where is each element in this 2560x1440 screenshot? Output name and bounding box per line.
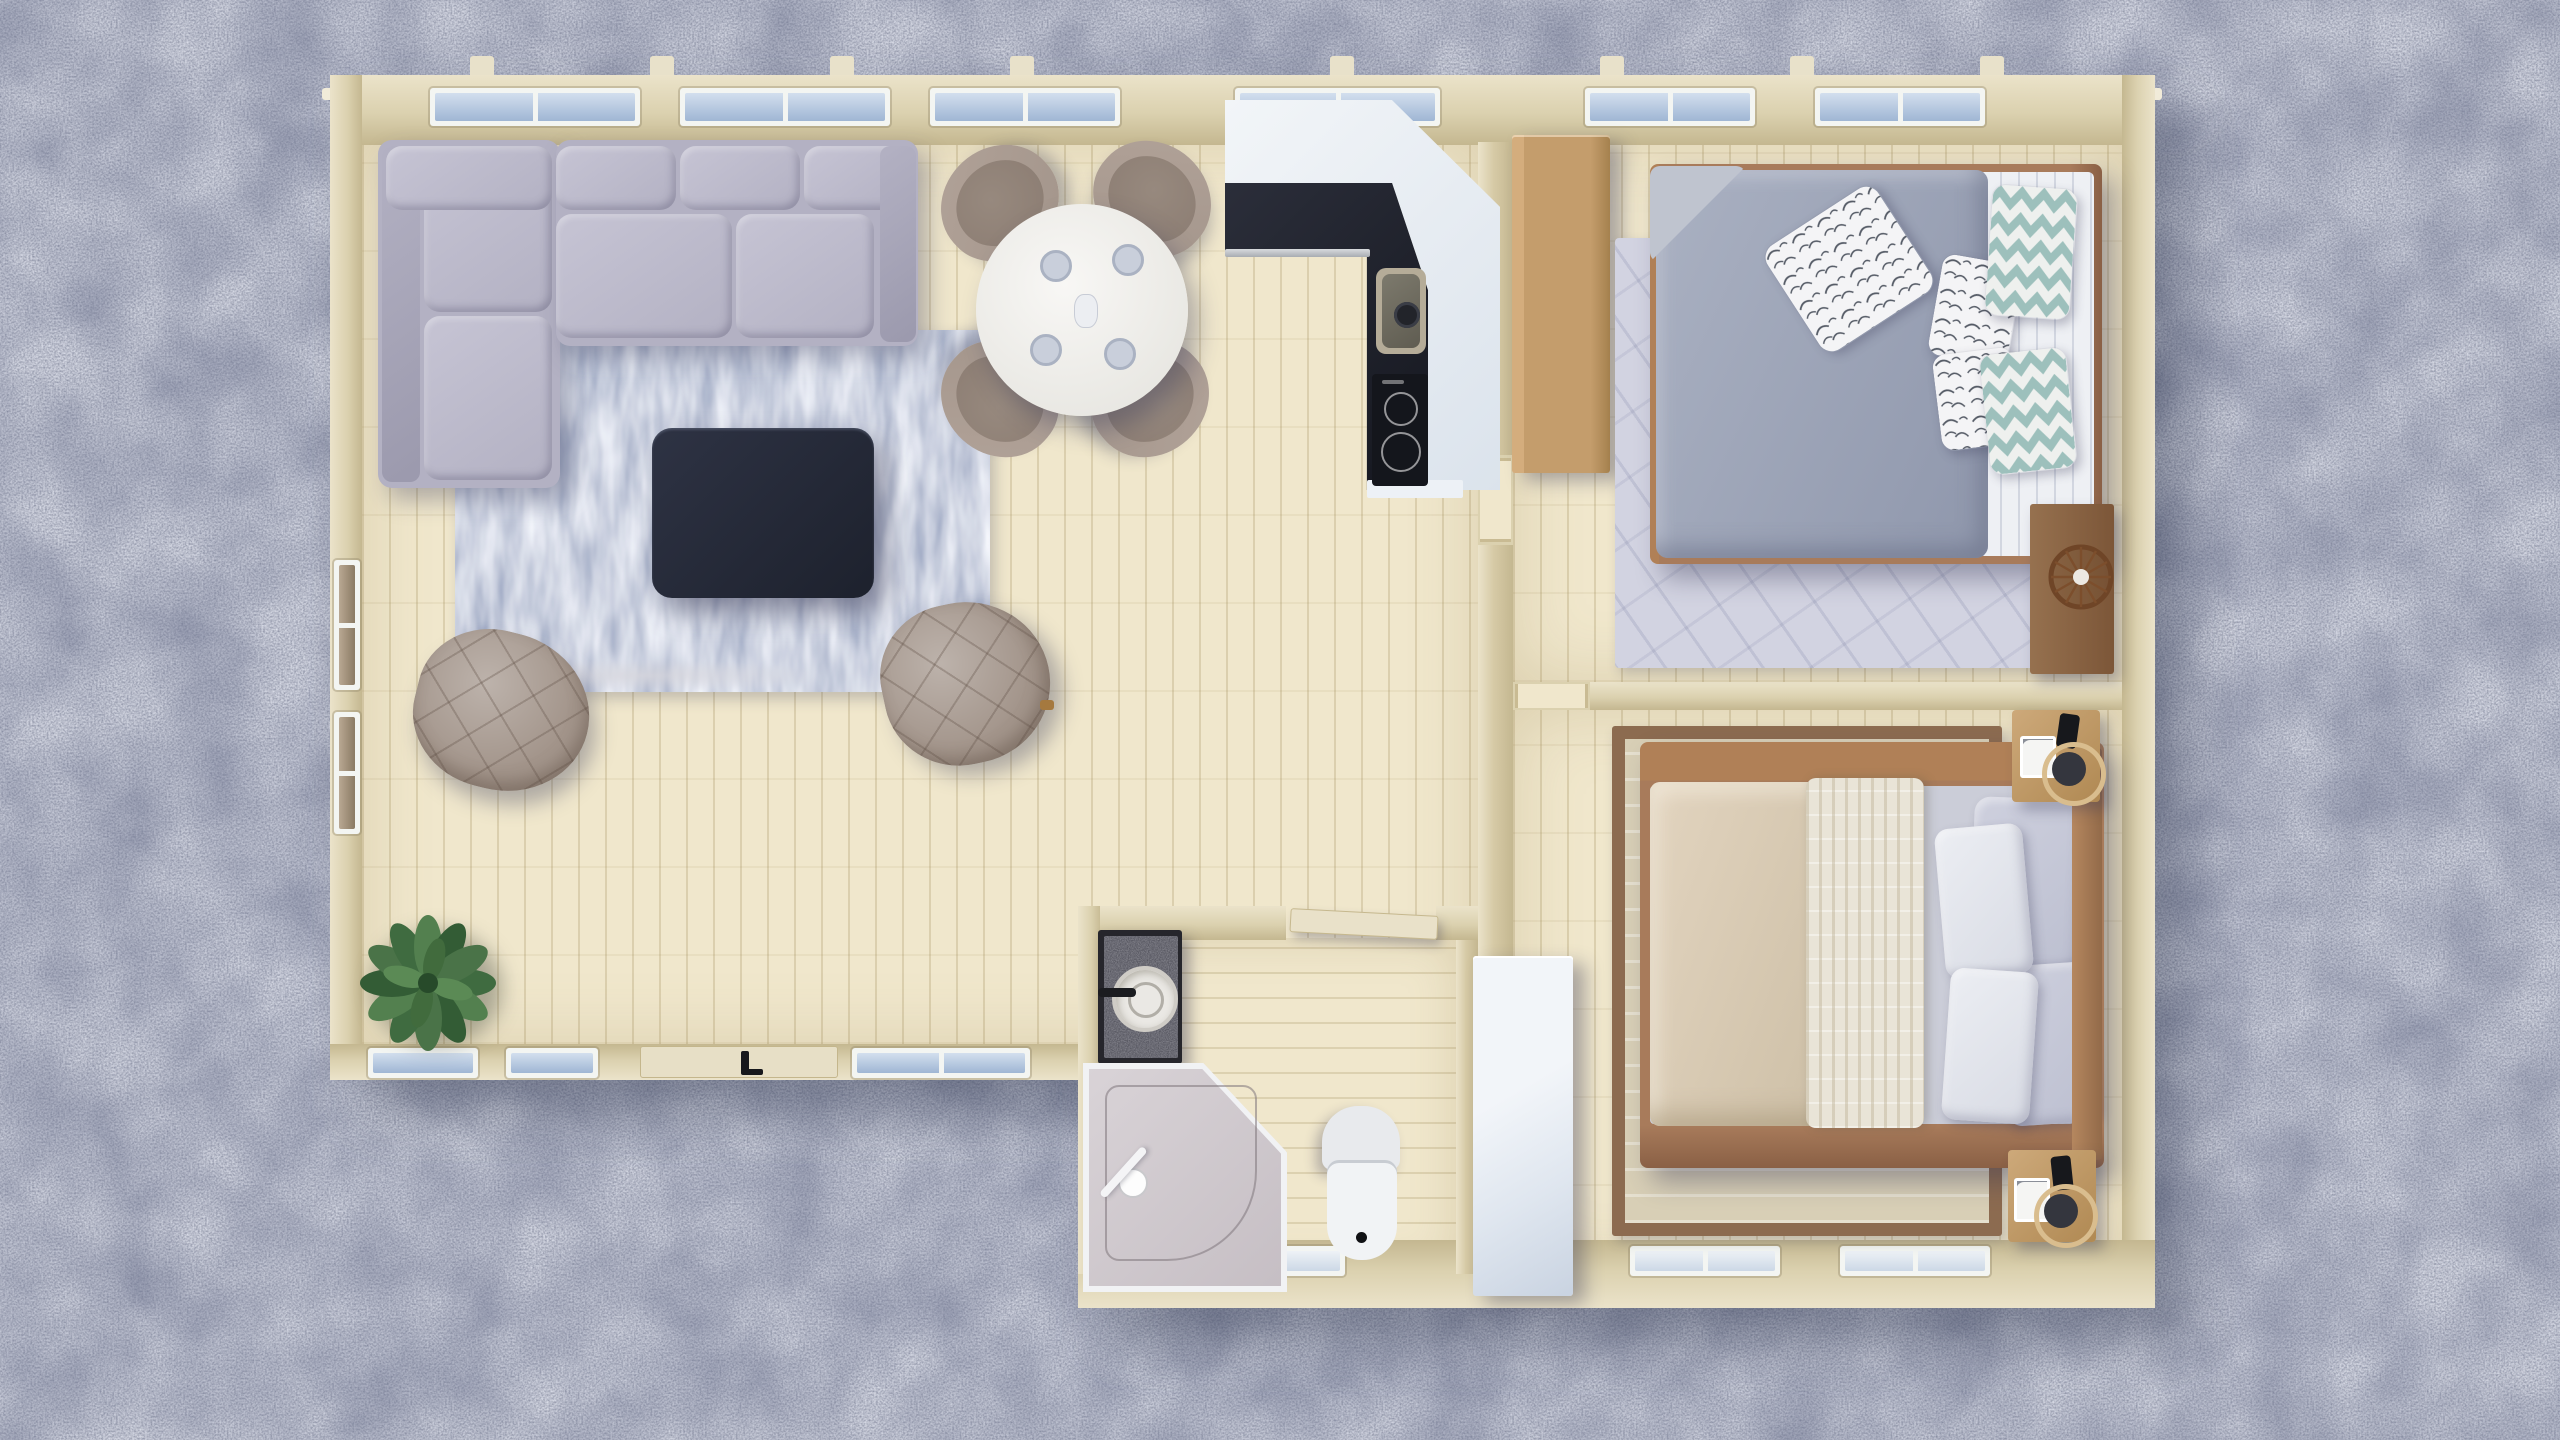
door-handle-bar (741, 1069, 763, 1075)
bed2-white-pillow-top (1934, 822, 2035, 979)
window-glass (511, 1053, 593, 1073)
window-mullion (1898, 91, 1903, 123)
hob-controls (1382, 380, 1404, 384)
wall-between-bedrooms (1590, 682, 2122, 710)
sofa-seat-cushion (736, 214, 874, 338)
sofa-back-cushion (386, 146, 552, 210)
kitchen-sink (1376, 268, 1426, 354)
counter-steel-edge (1225, 249, 1370, 257)
window-west-2 (334, 712, 360, 834)
window-north-living-1 (430, 88, 640, 126)
hob-burner-small (1384, 392, 1418, 426)
sofa-chaise-cushion (424, 316, 552, 480)
toilet-flush-button (1356, 1232, 1367, 1243)
window-mullion (1668, 91, 1673, 123)
window-bedroom2-south-1 (1630, 1246, 1780, 1276)
window-mullion (783, 91, 788, 123)
white-wardrobe (1473, 956, 1573, 1296)
sofa-back-cushion (680, 146, 800, 210)
potted-plant (352, 908, 504, 1058)
hob-burner-large (1381, 432, 1421, 472)
coffee-table (652, 428, 874, 598)
entrance-door (640, 1046, 838, 1078)
jug (1074, 294, 1098, 328)
faucet (1098, 988, 1136, 997)
window-south-3 (852, 1048, 1030, 1078)
window-west-1 (334, 560, 360, 690)
bed2-knit-blanket (1806, 778, 1924, 1128)
induction-hob (1372, 374, 1428, 486)
wall-east (2122, 75, 2155, 1308)
window-north-living-2 (680, 88, 890, 126)
oak-wardrobe (1512, 135, 1610, 473)
bed2-headboard (2072, 748, 2102, 1160)
rattan-wheel-decor (2046, 542, 2116, 612)
window-mullion (939, 1051, 944, 1075)
chevron-pillow-bottom (1978, 346, 2078, 477)
window-mullion (533, 91, 538, 123)
sofa-back-cushion (556, 146, 676, 210)
cup (1112, 244, 1144, 276)
chair-foot (1040, 700, 1054, 710)
sofa-seat-cushion (556, 214, 732, 338)
window-mullion (1913, 1249, 1918, 1273)
chevron-pillow-top (1984, 183, 2079, 321)
window-north-bedroom1-1 (1585, 88, 1755, 126)
tray-bowl (2052, 752, 2086, 786)
floor-plan-render (0, 0, 2560, 1440)
window-bedroom2-south-2 (1840, 1246, 1990, 1276)
tray-bowl (2044, 1194, 2078, 1228)
bed2-white-pillow-bottom (1941, 967, 2039, 1125)
window-mullion (1023, 91, 1028, 123)
bedroom2-door-threshold (1515, 684, 1588, 708)
toilet-seat (1327, 1160, 1397, 1260)
window-north-living-3 (930, 88, 1120, 126)
sink-faucet (1394, 302, 1420, 328)
wall-bathroom-north-b (1436, 906, 1478, 940)
cup (1030, 334, 1062, 366)
sofa-arm-right (880, 146, 916, 342)
window-mullion (337, 771, 357, 776)
window-south-2 (506, 1048, 598, 1078)
window-north-bedroom1-2 (1815, 88, 1985, 126)
window-mullion (337, 623, 357, 628)
cup (1040, 250, 1072, 282)
window-mullion (1703, 1249, 1708, 1273)
cup (1104, 338, 1136, 370)
